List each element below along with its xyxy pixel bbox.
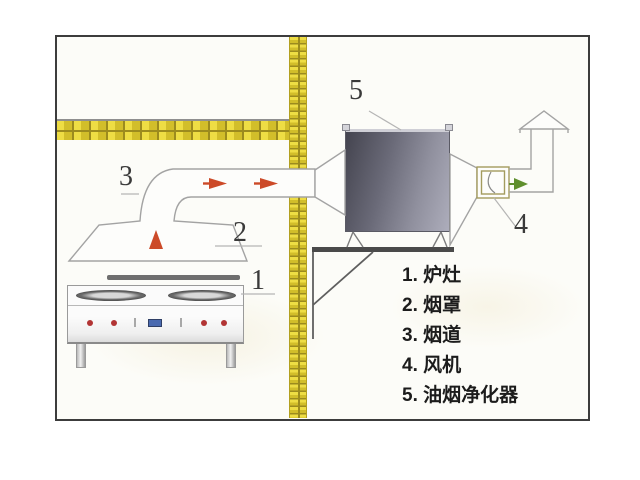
outlet-cone xyxy=(450,154,477,245)
legend-item-purifier: 5. 油烟净化器 xyxy=(402,381,582,411)
purifier-leg-struts xyxy=(347,232,447,247)
callout-leader-line xyxy=(494,198,516,227)
diagram-frame: 1 2 3 4 5 1. 炉灶 2. 烟罩 3. 烟道 4. 风机 5. 油烟净… xyxy=(55,35,590,421)
inlet-cone xyxy=(315,150,345,215)
callout-stove: 1 xyxy=(251,267,265,295)
callout-duct: 3 xyxy=(119,163,133,191)
callout-fan: 4 xyxy=(514,211,528,239)
legend-item-duct: 3. 烟道 xyxy=(402,321,582,351)
outflow-arrow-icon xyxy=(514,178,528,190)
legend: 1. 炉灶 2. 烟罩 3. 烟道 4. 风机 5. 油烟净化器 xyxy=(402,261,582,411)
callout-hood: 2 xyxy=(233,219,247,247)
legend-item-fan: 4. 风机 xyxy=(402,351,582,381)
fan-box-inner xyxy=(482,171,505,194)
legend-item-hood: 2. 烟罩 xyxy=(402,291,582,321)
callout-leader-line xyxy=(369,111,401,130)
callout-purifier: 5 xyxy=(349,77,363,105)
purifier-shelf xyxy=(312,247,454,252)
legend-item-stove: 1. 炉灶 xyxy=(402,261,582,291)
hood-and-duct-outline xyxy=(69,169,315,261)
wall-bracket xyxy=(313,252,373,339)
exhaust-cap-icon xyxy=(520,111,568,133)
